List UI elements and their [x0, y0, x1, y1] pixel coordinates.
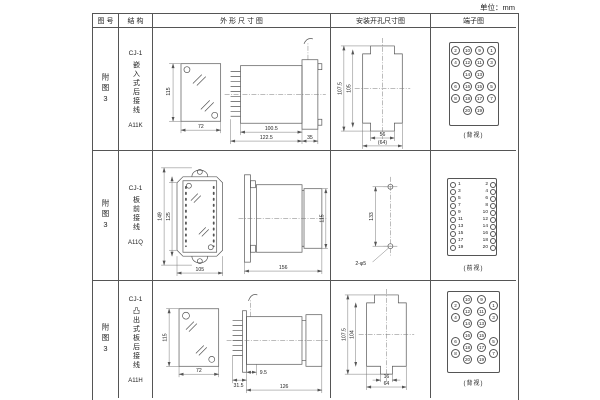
catalog-sheet: 单位：mm 图 号 结 构 外 形 尺 寸 图 安装开孔尺寸图 端子图 附图3 … [0, 0, 600, 400]
model-label: CJ-1 [129, 50, 143, 57]
structure-desc: 嵌入式后接线 [131, 61, 141, 115]
terminal-view-label: (背视) [431, 378, 516, 387]
mounting-cell-row2: 133 2-φ5 [331, 151, 431, 281]
mounting-drawing-a11q: 133 2-φ5 [331, 151, 430, 280]
terminal-pin: 6 [451, 82, 460, 91]
terminal-pin: 10 [463, 46, 472, 55]
terminal-pin: 14 [463, 319, 472, 328]
header-cell-outline: 外 形 尺 寸 图 [153, 14, 331, 28]
terminal-pin: 5 [487, 82, 496, 91]
terminal-pin: 14 [463, 70, 472, 79]
dim-label: 35 [307, 135, 313, 141]
terminal-pin: 16 [463, 82, 472, 91]
terminal-pin: 15 [475, 82, 484, 91]
figure-no-cell-row1: 附图3 [93, 28, 119, 151]
model-label: CJ-1 [129, 185, 143, 192]
dim-label: 126 [280, 384, 289, 390]
terminal-pin: 3 [489, 313, 498, 322]
header-figure-no-label: 图 号 [98, 16, 114, 26]
terminal-pin: 4 [451, 313, 460, 322]
mounting-cell-row3: 107.5 104 16 64 [331, 281, 431, 398]
terminal-cell-row2: 135791113151719 2468101214161820 (前视) [431, 151, 516, 281]
dim-label: 9.5 [260, 370, 267, 376]
terminal-pin: 10 [463, 295, 472, 304]
terminal-pin: 16 [463, 331, 472, 340]
figure-no-cell-row2: 附图3 [93, 151, 119, 281]
structure-cell-row2: CJ-1 板前接线 A11Q [119, 151, 153, 281]
header-cell-structure: 结 构 [119, 14, 153, 28]
terminal-pin: 19 [477, 355, 486, 364]
terminal-diagram-a11h: 1012141618202468911131517191357 (背视) [431, 281, 516, 398]
dim-label: 104 [349, 330, 355, 339]
header-terminal-label: 端子图 [463, 16, 484, 26]
terminal-pin: 6 [451, 337, 460, 346]
structure-code: A11K [128, 123, 142, 129]
structure-cell-row1: CJ-1 嵌入式后接线 A11K [119, 28, 153, 151]
header-cell-figure-no: 图 号 [93, 14, 119, 28]
unit-label: 单位：mm [480, 2, 515, 13]
terminal-pin: 3 [487, 58, 496, 67]
figure-no-text: 附图3 [100, 199, 111, 232]
dim-label: 149 [158, 212, 164, 221]
model-label: CJ-1 [129, 296, 143, 303]
dim-label: 72 [196, 368, 202, 374]
terminal-number: 12 [476, 216, 488, 223]
terminal-pin: 7 [487, 94, 496, 103]
header-mounting-label: 安装开孔尺寸图 [356, 16, 405, 26]
dim-label: 156 [279, 265, 288, 271]
dim-label: 105 [346, 84, 352, 93]
terminal-pin: 20 [463, 106, 472, 115]
dim-label: 72 [198, 124, 204, 130]
outline-cell-row1: 115 72 100.5 122.5 35 [153, 28, 331, 151]
terminal-pin: 12 [463, 58, 472, 67]
terminal-number: 2 [476, 181, 488, 188]
dim-label: 100.5 [265, 126, 278, 132]
terminal-pin: 9 [477, 295, 486, 304]
terminal-number: 14 [476, 223, 488, 230]
terminal-number: 20 [476, 244, 488, 251]
figure-no-cell-row3: 附图3 [93, 281, 119, 398]
dim-label: 115 [166, 87, 172, 95]
terminal-pin: 11 [475, 58, 484, 67]
terminal-pin: 2 [451, 301, 460, 310]
terminal-number: 18 [476, 237, 488, 244]
terminal-pin: 8 [451, 94, 460, 103]
structure-cell-row3: CJ-1 凸出式板后接线 A11H [119, 281, 153, 398]
terminal-cell-row1: 2109141211314136161558181772019 (背视) [431, 28, 516, 151]
outline-drawing-a11q: 149 125 105 156 115 [153, 151, 330, 280]
figure-no-text: 附图3 [100, 323, 111, 356]
dim-label: 115 [163, 333, 169, 341]
terminal-numbers-right: 2468101214161820 [431, 151, 516, 280]
terminal-number: 4 [476, 188, 488, 195]
terminal-pin: 1 [489, 301, 498, 310]
terminal-diagram-a11k: 2109141211314136161558181772019 (背视) [431, 28, 516, 150]
terminal-pin: 1 [487, 46, 496, 55]
figure-no-text: 附图3 [100, 73, 111, 106]
terminal-number: 6 [476, 195, 488, 202]
terminal-diagram-a11q: 135791113151719 2468101214161820 (前视) [431, 151, 516, 280]
terminal-pin: 12 [463, 307, 472, 316]
header-outline-label: 外 形 尺 寸 图 [220, 16, 263, 26]
outline-cell-row2: 149 125 105 156 115 [153, 151, 331, 281]
dim-label: 107.5 [337, 82, 343, 95]
terminal-number: 16 [476, 230, 488, 237]
mounting-cell-row1: 107.5 105 56 (64) [331, 28, 431, 151]
dim-label: 115 [319, 214, 325, 222]
dim-label: 125 [166, 212, 172, 221]
outline-cell-row3: 115 72 9.5 31.5 126 [153, 281, 331, 398]
structure-code: A11H [128, 378, 143, 384]
mounting-drawing-a11h: 107.5 104 16 64 [331, 281, 430, 398]
terminal-number: 10 [476, 209, 488, 216]
dim-label: 107.5 [341, 328, 347, 341]
dim-label: 31.5 [234, 383, 244, 389]
terminal-pin: 15 [477, 331, 486, 340]
terminal-pin: 9 [475, 46, 484, 55]
header-cell-mounting: 安装开孔尺寸图 [331, 14, 431, 28]
terminal-pin: 18 [463, 94, 472, 103]
terminal-pin: 19 [475, 106, 484, 115]
terminal-pin: 7 [489, 349, 498, 358]
dim-label: 16 [384, 374, 390, 380]
dim-label: (64) [378, 140, 387, 146]
terminal-pin: 18 [463, 343, 472, 352]
dim-label: 56 [380, 132, 386, 138]
dim-label: 105 [196, 267, 205, 273]
terminal-pin: 20 [463, 355, 472, 364]
structure-desc: 板前接线 [131, 196, 141, 232]
terminal-pin: 4 [451, 58, 460, 67]
mounting-drawing-a11k: 107.5 105 56 (64) [331, 28, 430, 150]
terminal-pin: 5 [489, 337, 498, 346]
outline-drawing-a11h: 115 72 9.5 31.5 126 [153, 281, 330, 398]
terminal-cell-row3: 1012141618202468911131517191357 (背视) [431, 281, 516, 398]
terminal-number: 8 [476, 202, 488, 209]
terminal-pin: 13 [475, 70, 484, 79]
terminal-pin: 17 [477, 343, 486, 352]
dim-label: 2-φ5 [355, 261, 366, 267]
structure-desc: 凸出式板后接线 [131, 307, 141, 370]
terminal-view-label: (背视) [431, 130, 516, 139]
terminal-pin: 17 [475, 94, 484, 103]
header-structure-label: 结 构 [128, 16, 144, 26]
terminal-view-label: (前视) [431, 263, 516, 272]
terminal-pin: 11 [477, 307, 486, 316]
terminal-pin: 2 [451, 46, 460, 55]
outline-drawing-a11k: 115 72 100.5 122.5 35 [153, 28, 330, 150]
dim-label: 133 [369, 212, 375, 221]
dim-label: 122.5 [260, 135, 273, 141]
spec-table: 图 号 结 构 外 形 尺 寸 图 安装开孔尺寸图 端子图 附图3 CJ-1 嵌… [92, 13, 519, 400]
header-cell-terminal: 端子图 [431, 14, 516, 28]
dim-label: 64 [384, 381, 390, 387]
terminal-pin: 13 [477, 319, 486, 328]
structure-code: A11Q [128, 240, 143, 246]
terminal-pin: 8 [451, 349, 460, 358]
